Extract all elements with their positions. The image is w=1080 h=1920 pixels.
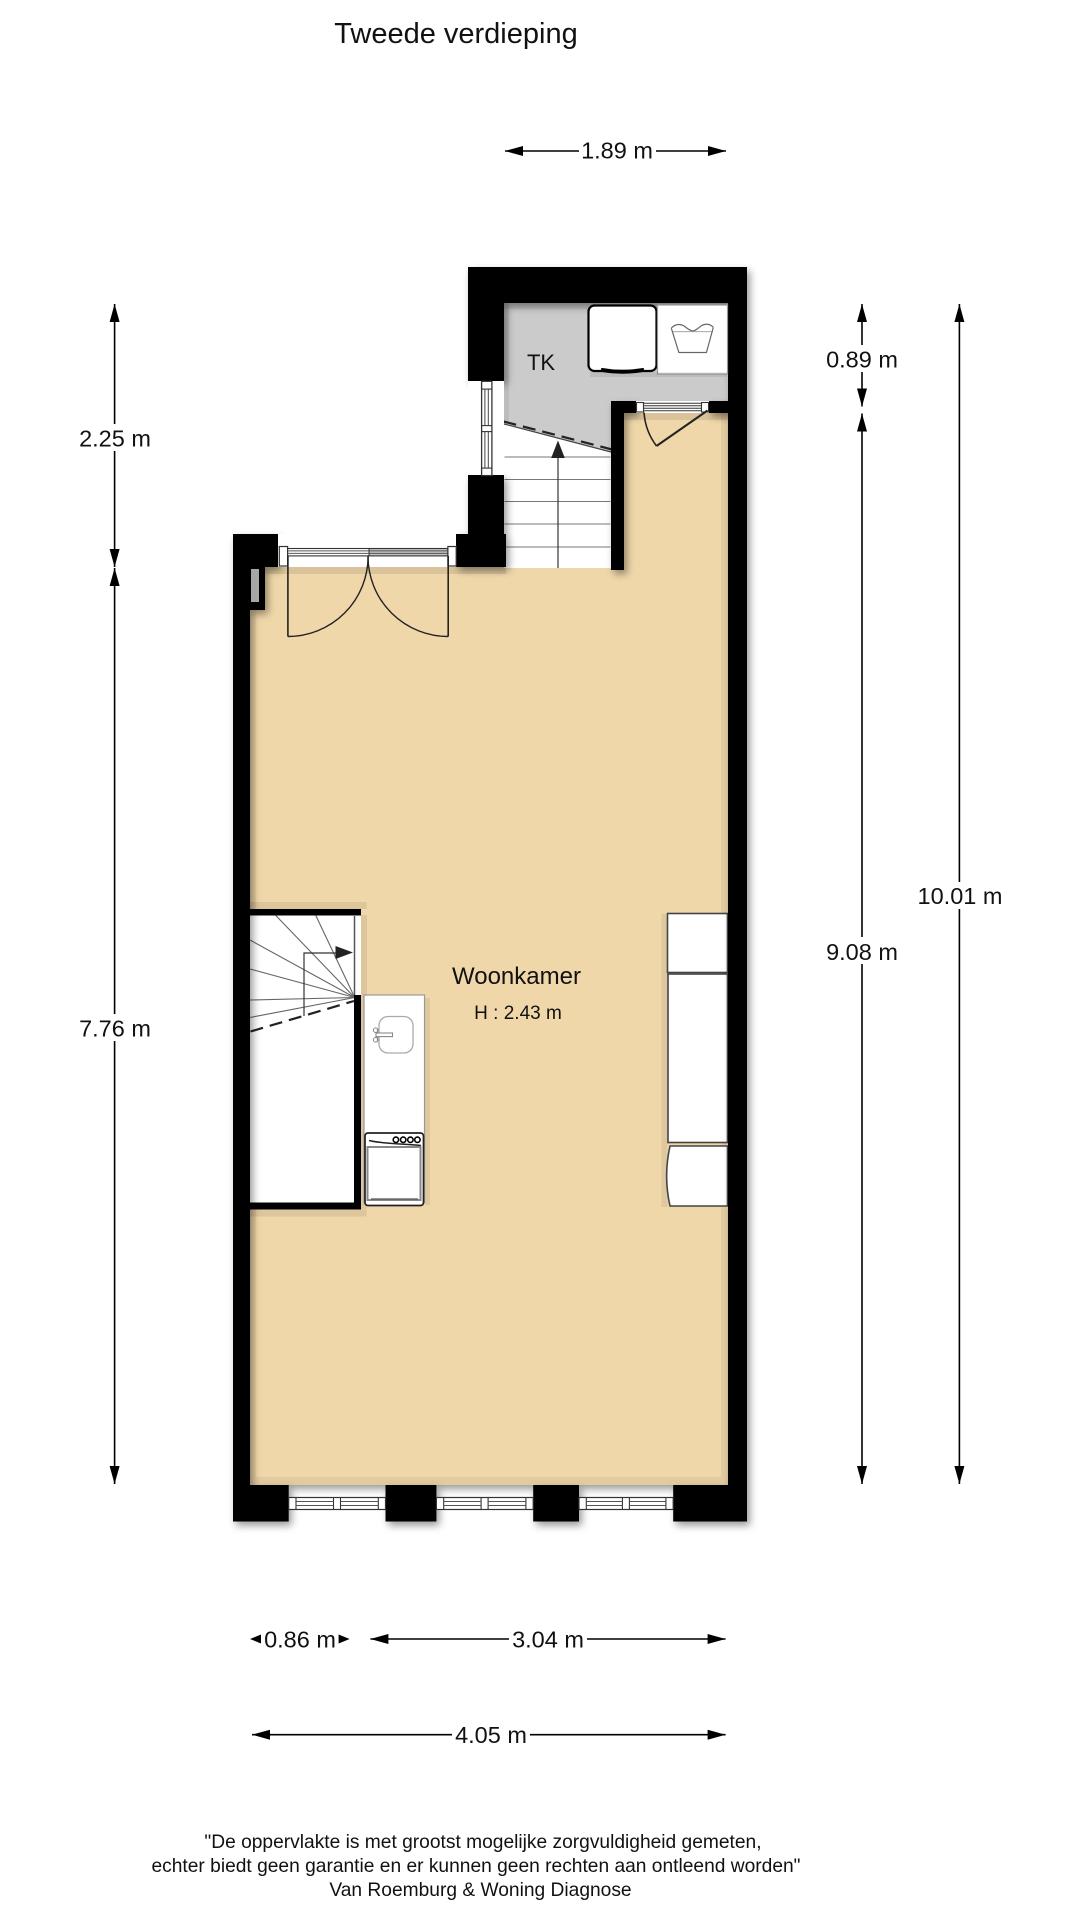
svg-text:Van Roemburg & Woning Diagnose: Van Roemburg & Woning Diagnose (329, 1880, 631, 1901)
svg-text:4.05 m: 4.05 m (455, 1722, 527, 1748)
svg-text:Tweede verdieping: Tweede verdieping (334, 18, 577, 50)
svg-text:10.01 m: 10.01 m (918, 883, 1003, 909)
svg-text:echter biedt geen garantie en: echter biedt geen garantie en er kunnen … (151, 1856, 800, 1877)
svg-text:3.04 m: 3.04 m (512, 1627, 584, 1653)
svg-text:7.76 m: 7.76 m (79, 1016, 151, 1042)
svg-text:0.86 m: 0.86 m (264, 1627, 336, 1653)
svg-text:0.89 m: 0.89 m (826, 347, 898, 373)
svg-text:H : 2.43 m: H : 2.43 m (474, 1003, 562, 1024)
svg-text:2.25 m: 2.25 m (79, 426, 151, 452)
svg-text:9.08 m: 9.08 m (826, 939, 898, 965)
svg-text:1.89 m: 1.89 m (581, 138, 653, 164)
svg-text:"De oppervlakte is met grootst: "De oppervlakte is met grootst mogelijke… (204, 1832, 761, 1853)
svg-text:TK: TK (527, 350, 555, 375)
svg-text:Woonkamer: Woonkamer (452, 963, 581, 990)
